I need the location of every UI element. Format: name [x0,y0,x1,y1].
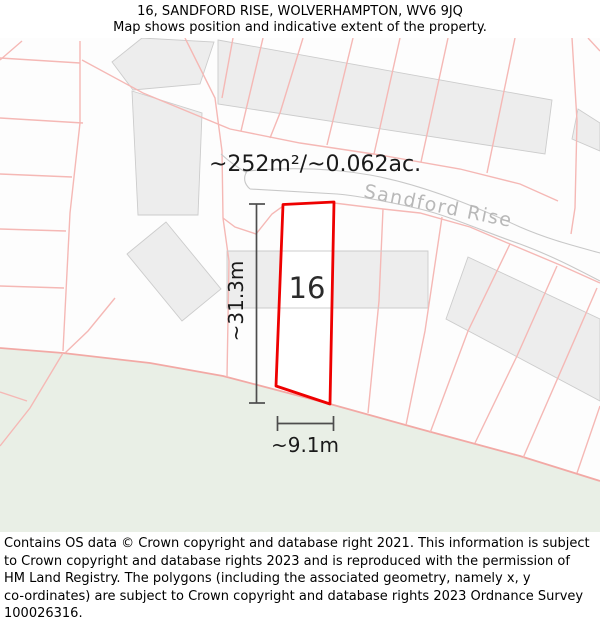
dimension-horizontal-label: ~9.1m [271,433,339,457]
copyright-text: Contains OS data © Crown copyright and d… [0,532,600,623]
buildings [112,38,600,401]
map-description: Map shows position and indicative extent… [0,20,600,36]
area-label: ~252m²/~0.062ac. [209,152,421,177]
building [127,222,221,321]
building [132,91,202,215]
map-canvas: 16 ~31.3m ~9.1m ~252m²/~0.062ac. Sandfor… [0,38,600,532]
property-title: 16, SANDFORD RISE, WOLVERHAMPTON, WV6 9J… [0,0,600,20]
map-header: 16, SANDFORD RISE, WOLVERHAMPTON, WV6 9J… [0,0,600,38]
plot-number-label: 16 [289,271,326,305]
dimension-vertical-label: ~31.3m [224,261,248,342]
road-name-label: Sandford Rise [362,180,515,232]
copyright-footer: Contains OS data © Crown copyright and d… [0,532,600,625]
page: 16, SANDFORD RISE, WOLVERHAMPTON, WV6 9J… [0,0,600,625]
